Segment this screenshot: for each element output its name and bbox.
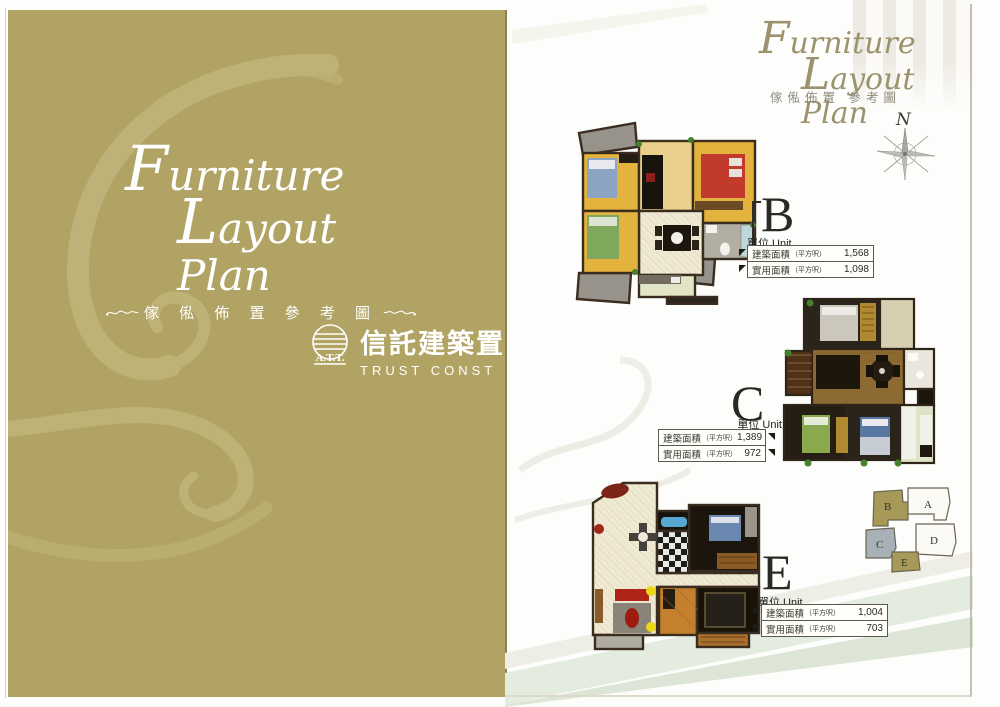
table-row: 實用面積 （平方呎） 703 [762, 620, 887, 636]
area-label: 建築面積 [752, 247, 790, 261]
bed-dark [705, 593, 745, 627]
area-value: 972 [744, 448, 761, 459]
unit-b-letter: B [761, 192, 794, 237]
floorplan-unit-c [780, 295, 938, 470]
unit-b-flag-1 [739, 249, 746, 256]
area-value: 1,389 [737, 432, 762, 443]
area-unit: （平方呎） [805, 624, 840, 634]
area-value: 1,568 [844, 248, 869, 259]
area-label: 實用面積 [752, 263, 790, 277]
area-label: 建築面積 [663, 431, 701, 445]
decor-top-sweep [505, 0, 745, 60]
kitchen-sink [661, 517, 687, 527]
unit-e-area-table: 建築面積 （平方呎） 1,004 實用面積 （平方呎） 703 [761, 604, 888, 637]
unit-e-flag-2 [753, 624, 760, 631]
area-unit: （平方呎） [791, 265, 826, 275]
dresser-bronze [717, 553, 757, 569]
unit-c-flag-2 [768, 449, 775, 456]
area-label: 實用面積 [663, 447, 701, 461]
keyplan-label-c: C [876, 539, 883, 551]
area-label: 建築面積 [766, 606, 804, 620]
table-row: 建築面積 （平方呎） 1,568 [748, 246, 873, 261]
toilet [720, 243, 730, 256]
kitchen-counter [902, 407, 916, 459]
sheet-subtitle-cjk: 傢俬佈置 參考圖 [770, 87, 901, 106]
area-unit: （平方呎） [702, 433, 737, 443]
toilet [916, 371, 924, 379]
area-label: 實用面積 [766, 622, 804, 636]
lamp-yellow [646, 586, 656, 596]
unit-e-letter: E [762, 550, 793, 595]
keyplan-label-e: E [901, 557, 908, 569]
compass-rose-icon [874, 126, 938, 184]
unit-c-flag-1 [768, 433, 775, 440]
table-row: 實用面積 （平方呎） 972 [659, 445, 765, 461]
wardrobe-gold [860, 303, 876, 341]
unit-e-flag-1 [753, 608, 760, 615]
brochure-spread: Furniture Layout Plan 傢 俬 佈 置 參 考 圖 [0, 0, 1000, 707]
bottom-page-edge [505, 695, 971, 697]
keyplan-label-a: A [924, 499, 932, 511]
area-value: 1,004 [858, 607, 883, 618]
area-value: 703 [866, 623, 883, 634]
area-unit: （平方呎） [791, 249, 826, 259]
keyplan: A B C D E [858, 482, 963, 574]
table-row: 建築面積 （平方呎） 1,389 [659, 430, 765, 445]
area-value: 1,098 [844, 264, 869, 275]
cabinet-dark [816, 355, 860, 389]
unit-c-area-table: 建築面積 （平方呎） 1,389 實用面積 （平方呎） 972 [658, 429, 766, 462]
area-unit: （平方呎） [702, 449, 737, 459]
floorplan-unit-b [575, 113, 765, 305]
table-row: 實用面積 （平方呎） 1,098 [748, 261, 873, 277]
plan-page: Furniture Layout Plan 傢俬佈置 參考圖 N [0, 0, 1000, 707]
floorplan-unit-e [585, 477, 763, 657]
area-unit: （平方呎） [805, 608, 840, 618]
lamp-yellow [646, 622, 656, 632]
sheet-title: Furniture Layout Plan [737, 16, 971, 130]
unit-b-area-table: 建築面積 （平方呎） 1,568 實用面積 （平方呎） 1,098 [747, 245, 874, 278]
keyplan-label-d: D [930, 535, 938, 547]
dining-table [638, 532, 648, 542]
table-row: 建築面積 （平方呎） 1,004 [762, 605, 887, 620]
right-page-edge [970, 4, 972, 697]
keyplan-label-b: B [884, 501, 891, 513]
unit-b-flag-2 [739, 265, 746, 272]
sofa-red [615, 589, 649, 601]
